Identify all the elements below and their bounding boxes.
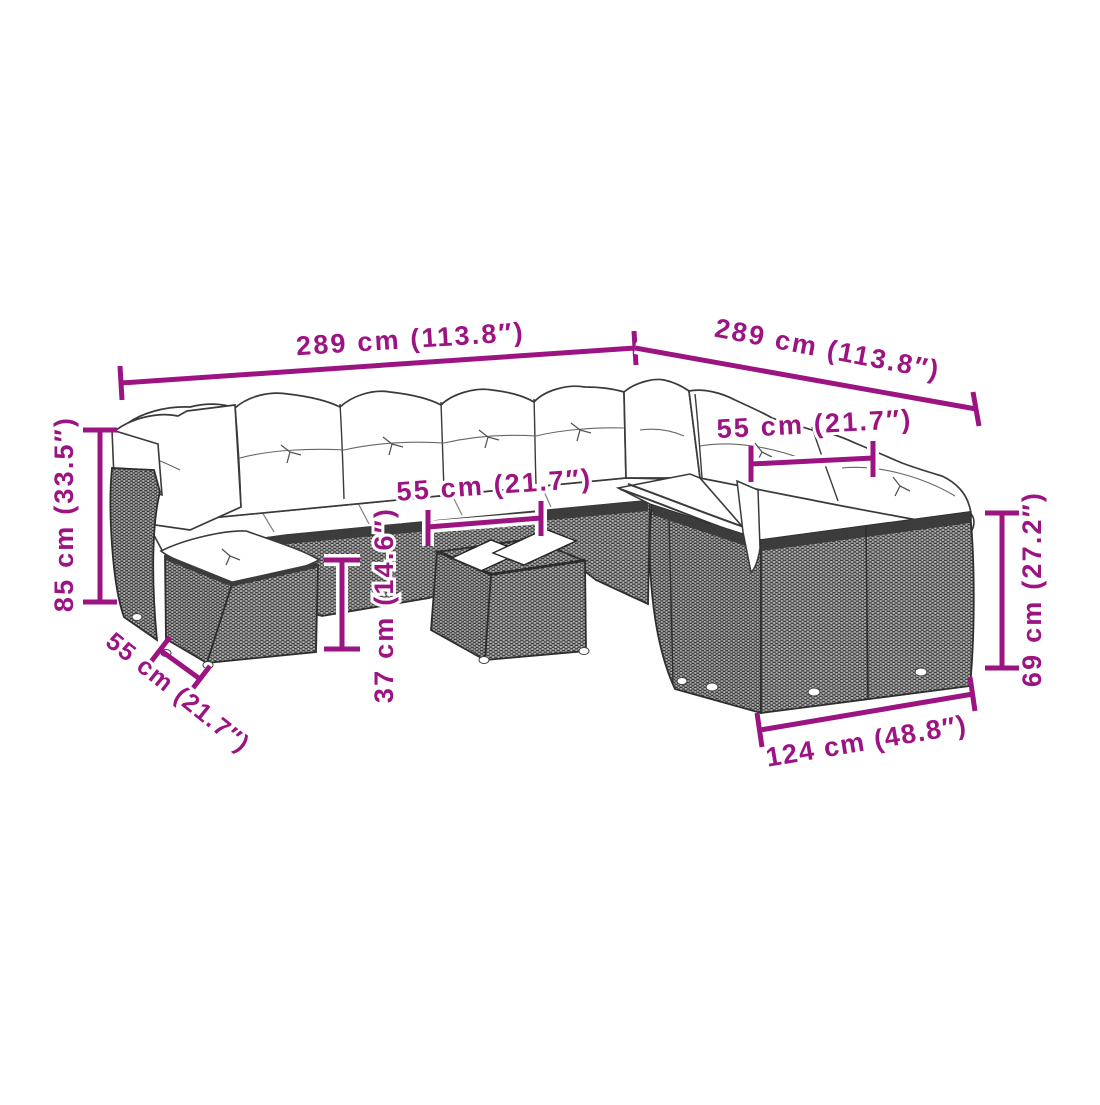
svg-text:37 cm (14.6″): 37 cm (14.6″) (369, 507, 399, 703)
svg-text:69 cm (27.2″): 69 cm (27.2″) (1017, 491, 1047, 687)
svg-text:85 cm (33.5″): 85 cm (33.5″) (49, 416, 79, 612)
